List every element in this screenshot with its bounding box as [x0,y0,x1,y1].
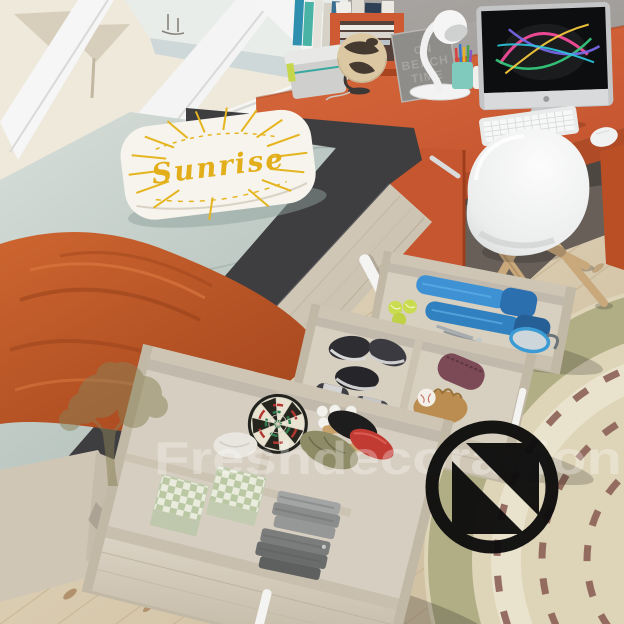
photo-scene: ON BEACH TIME [0,0,624,624]
bedroom-product-photo: ON BEACH TIME [0,0,624,624]
